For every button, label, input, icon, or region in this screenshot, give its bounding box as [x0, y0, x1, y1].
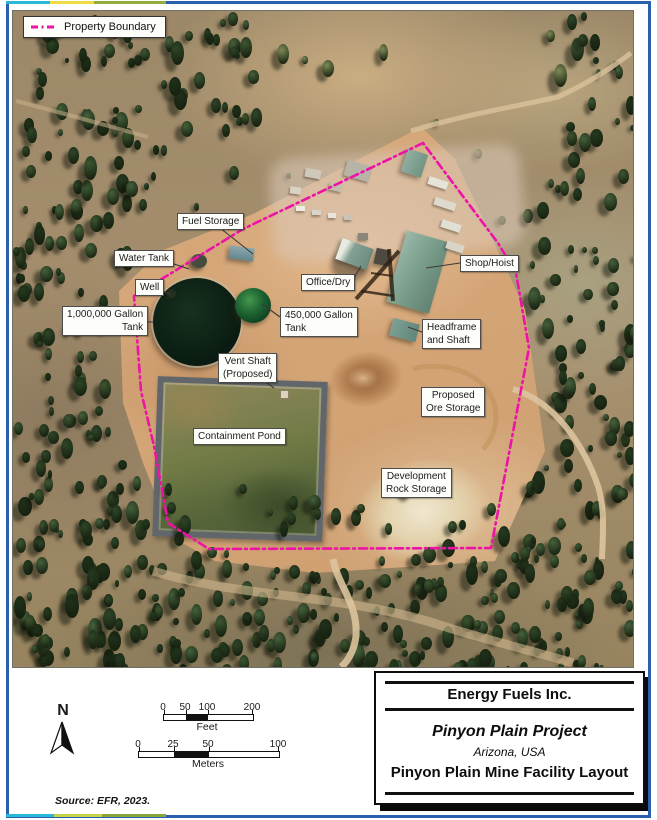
feet-unit-label: Feet — [172, 721, 242, 733]
label-headframe-shaft: Headframeand Shaft — [422, 319, 481, 349]
meters-scale-bar — [138, 751, 280, 758]
source-note: Source: EFR, 2023. — [55, 795, 150, 807]
label-shop-hoist: Shop/Hoist — [460, 255, 519, 272]
band-yellow-bottom — [54, 814, 102, 817]
label-water-tank: Water Tank — [114, 250, 174, 267]
aerial-map: Property Boundary Fuel Storage Water Tan… — [12, 10, 634, 668]
meters-tick-25: 25 — [156, 739, 190, 750]
feet-scale-fill — [186, 715, 208, 720]
title-block-rule — [385, 792, 634, 795]
meters-tick-0: 0 — [121, 739, 155, 750]
label-well: Well — [135, 279, 164, 296]
band-cyan-top — [6, 1, 50, 4]
title-block-rule — [385, 708, 634, 711]
band-olive-bottom — [102, 814, 166, 817]
label-vent-shaft: Vent Shaft(Proposed) — [218, 353, 277, 383]
label-1m-gallon-tank: 1,000,000 GallonTank — [62, 306, 148, 336]
title-block-rule — [385, 681, 634, 684]
report-page: Property Boundary Fuel Storage Water Tan… — [0, 0, 657, 820]
band-olive-top — [94, 1, 166, 4]
north-label: N — [49, 702, 77, 720]
meters-tick-50: 50 — [191, 739, 225, 750]
label-office-dry: Office/Dry — [301, 274, 355, 291]
label-proposed-ore-storage: ProposedOre Storage — [421, 387, 485, 417]
band-cyan-bottom — [6, 814, 54, 817]
project-location: Arizona, USA — [376, 745, 643, 759]
feet-scale-bar — [163, 714, 254, 721]
label-containment-pond: Containment Pond — [193, 428, 286, 445]
project-name: Pinyon Plain Project — [376, 723, 643, 741]
company-name: Energy Fuels Inc. — [376, 686, 643, 703]
map-title: Pinyon Plain Mine Facility Layout — [376, 764, 643, 781]
label-fuel-storage: Fuel Storage — [177, 213, 244, 230]
meters-scale-fill — [174, 752, 209, 757]
label-development-rock-storage: DevelopmentRock Storage — [381, 468, 452, 498]
meters-unit-label: Meters — [173, 758, 243, 770]
tree-layer-fg — [13, 11, 633, 667]
legend: Property Boundary — [23, 16, 166, 38]
band-yellow-top — [50, 1, 94, 4]
property-boundary-legend-symbol — [30, 22, 58, 32]
title-block: Energy Fuels Inc. Pinyon Plain Project A… — [374, 671, 645, 805]
label-450k-gallon-tank: 450,000 GallonTank — [280, 307, 358, 337]
legend-label: Property Boundary — [64, 21, 156, 33]
feet-tick-100: 100 — [190, 702, 224, 713]
north-arrow-icon — [47, 719, 77, 757]
